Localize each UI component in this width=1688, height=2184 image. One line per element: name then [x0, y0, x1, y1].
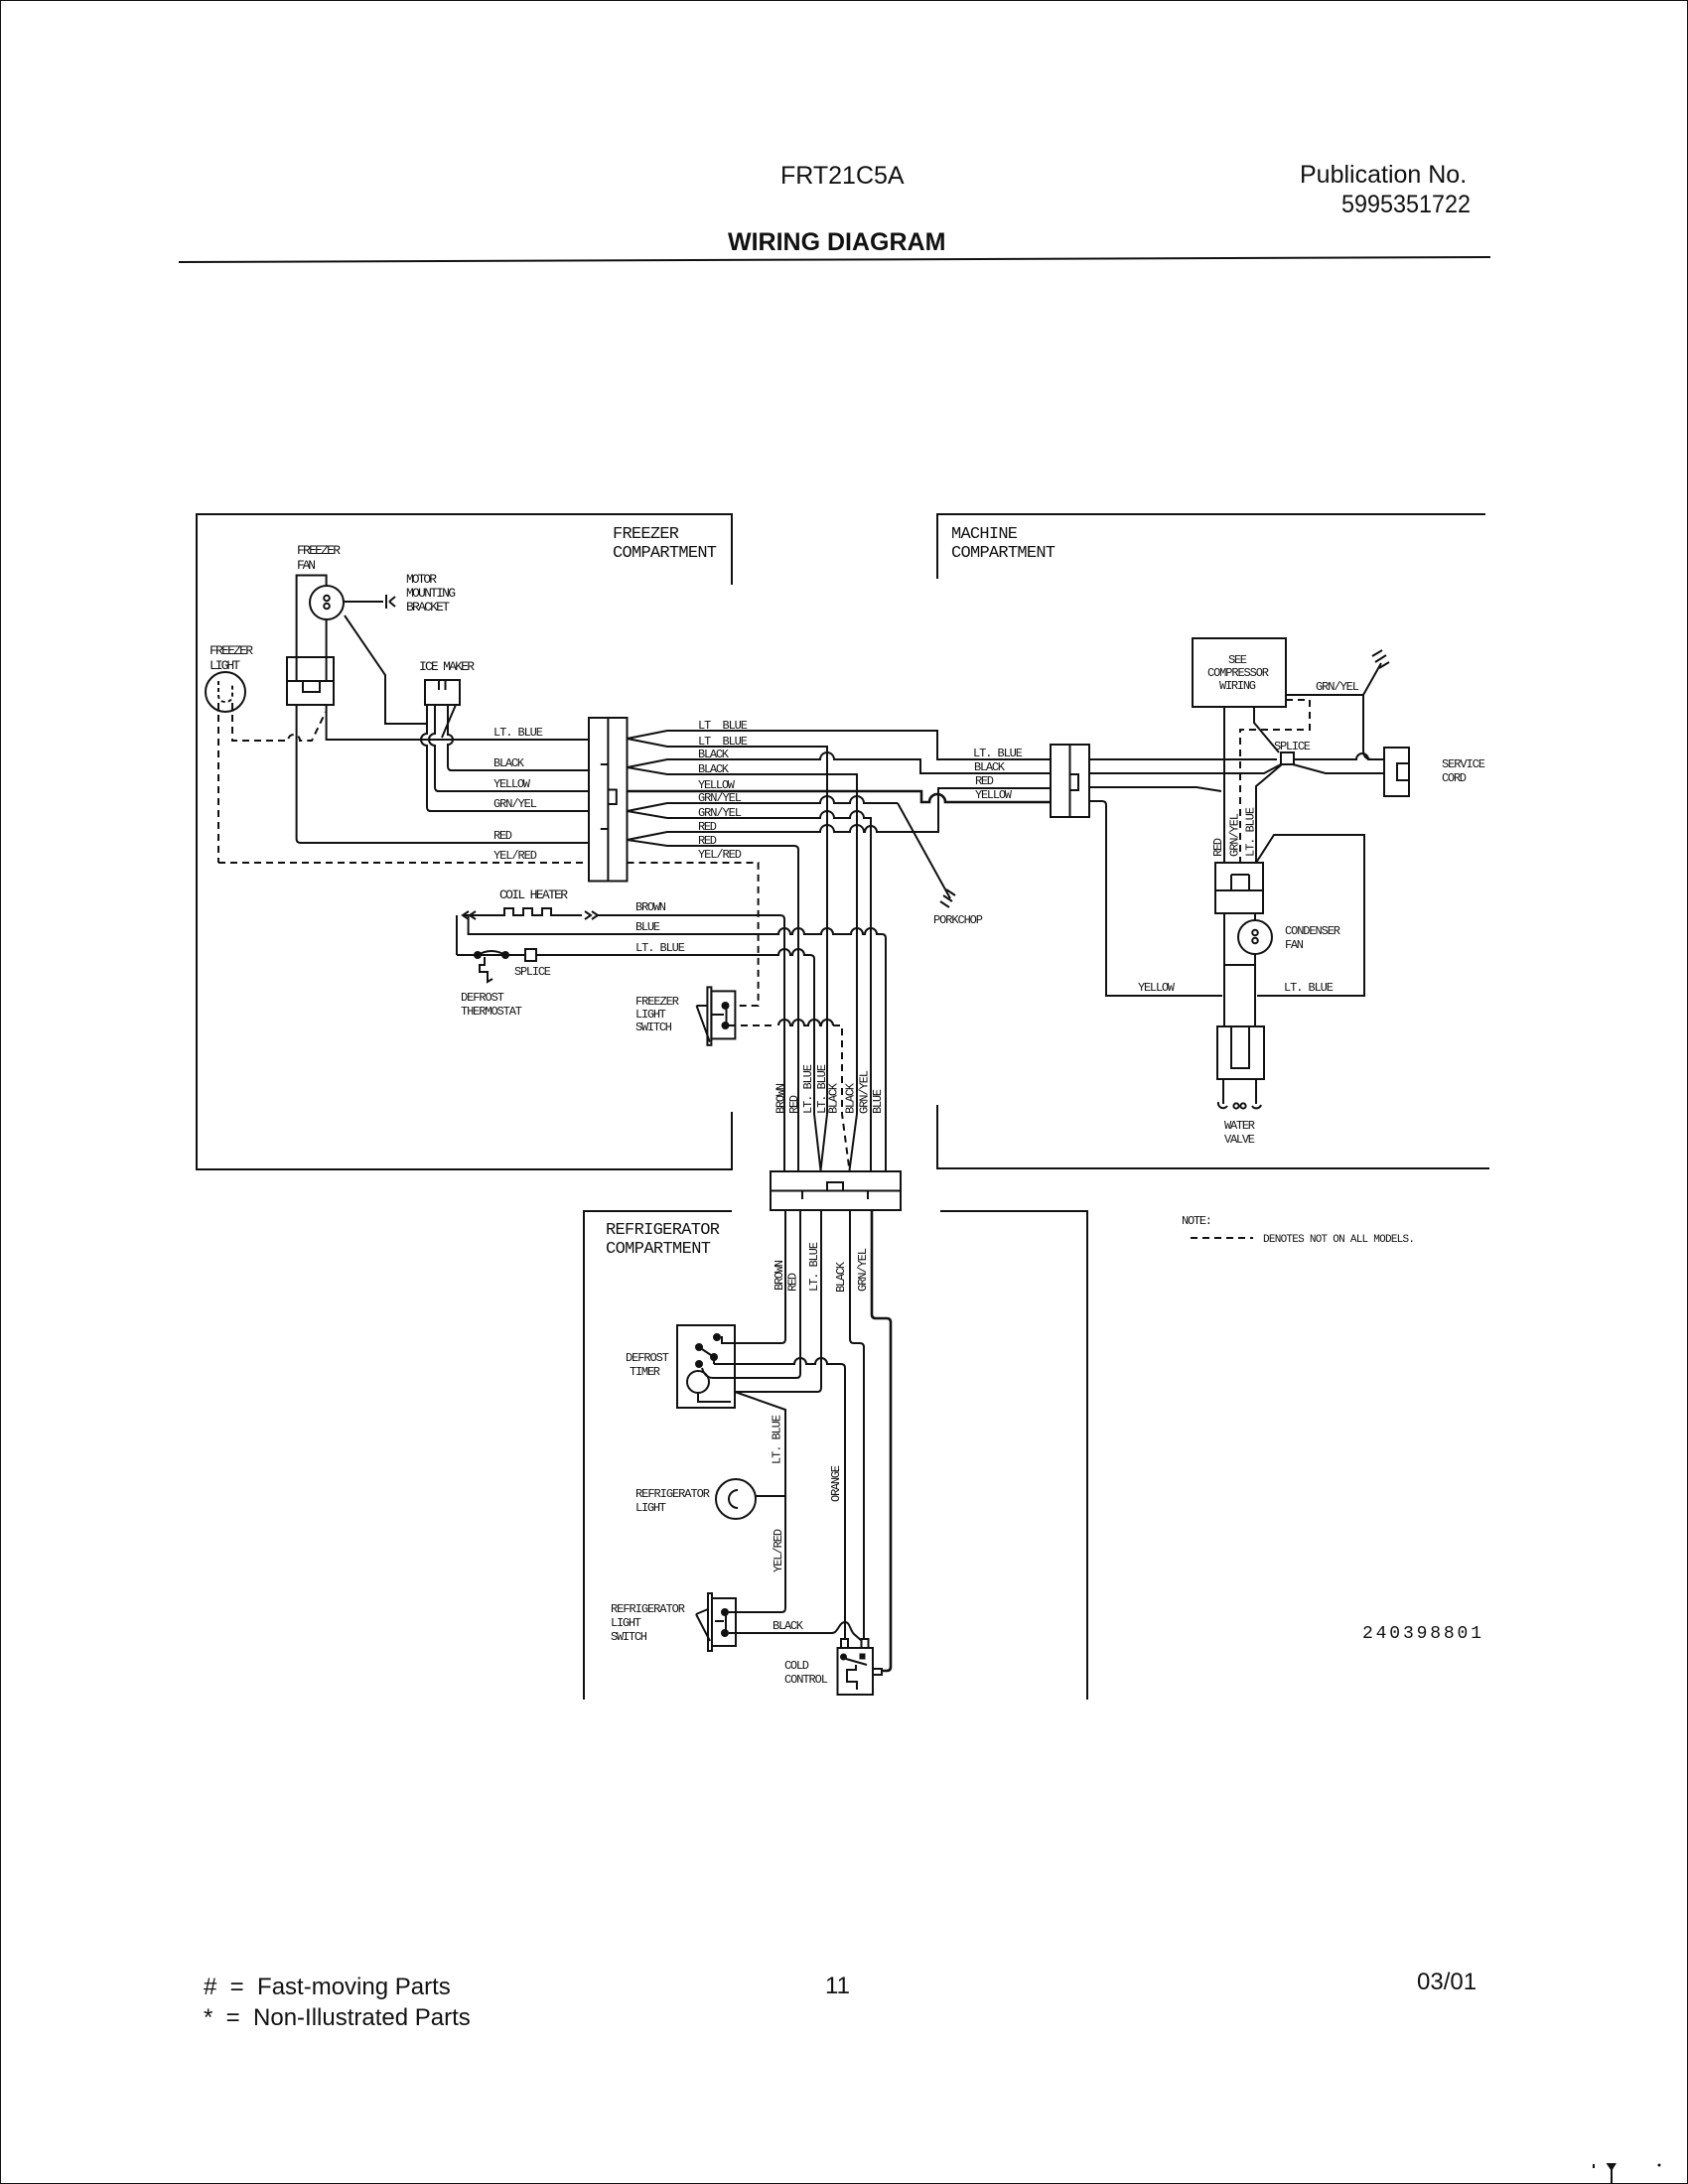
svg-text:RED: RED [698, 820, 717, 834]
svg-text:REFRIGERATOR: REFRIGERATOR [611, 1602, 685, 1616]
svg-text:LT. BLUE: LT. BLUE [635, 941, 685, 955]
svg-text:REFRIGERATOR: REFRIGERATOR [606, 1221, 720, 1240]
svg-text:ICE MAKER: ICE MAKER [419, 659, 475, 674]
svg-text:CONTROL: CONTROL [784, 1673, 828, 1687]
svg-text:# = Fast-moving Parts: # = Fast-moving Parts [204, 1974, 451, 2000]
svg-text:RED: RED [493, 829, 512, 843]
svg-text:FREEZER: FREEZER [613, 525, 679, 544]
svg-text:COIL HEATER: COIL HEATER [499, 887, 568, 902]
svg-text:GRN/YEL: GRN/YEL [493, 797, 537, 811]
svg-text:BLACK: BLACK [698, 762, 730, 776]
svg-text:RED: RED [1211, 838, 1225, 857]
svg-text:FRT21C5A: FRT21C5A [780, 162, 905, 190]
svg-text:LT. BLUE: LT. BLUE [807, 1242, 821, 1292]
svg-text:SEE: SEE [1228, 653, 1247, 667]
svg-text:LT. BLUE: LT. BLUE [1244, 807, 1258, 857]
svg-text:BROWN: BROWN [774, 1083, 788, 1114]
svg-text:Publication No.: Publication No. [1300, 161, 1467, 189]
svg-text:240398801: 240398801 [1362, 1624, 1481, 1644]
svg-text:MOTOR: MOTOR [406, 572, 437, 587]
svg-text:BLACK: BLACK [493, 756, 525, 770]
svg-text:FAN: FAN [1285, 938, 1304, 952]
svg-text:YEL/RED: YEL/RED [772, 1529, 785, 1572]
svg-text:CONDENSER: CONDENSER [1285, 924, 1340, 938]
svg-text:YELLOW: YELLOW [975, 788, 1013, 802]
svg-text:FAN: FAN [297, 558, 316, 573]
svg-text:YELLOW: YELLOW [698, 778, 736, 792]
svg-text:GRN/YEL: GRN/YEL [698, 806, 742, 820]
svg-text:YELLOW: YELLOW [493, 777, 531, 791]
svg-text:BLACK: BLACK [974, 760, 1006, 774]
svg-text:LT. BLUE: LT. BLUE [771, 1415, 784, 1464]
svg-text:GRN/YEL: GRN/YEL [698, 791, 742, 805]
svg-text:THERMOSTAT: THERMOSTAT [461, 1005, 522, 1019]
svg-text:WIRING DIAGRAM: WIRING DIAGRAM [728, 228, 945, 256]
svg-text:BROWN: BROWN [773, 1260, 786, 1291]
svg-text:LIGHT: LIGHT [210, 658, 240, 673]
svg-text:BLACK: BLACK [827, 1082, 841, 1114]
svg-text:GRN/YEL: GRN/YEL [1316, 680, 1359, 694]
svg-text:LT BLUE: LT BLUE [698, 735, 748, 749]
svg-text:BRACKET: BRACKET [406, 600, 450, 614]
svg-text:BLUE: BLUE [871, 1089, 885, 1114]
svg-text:ORANGE: ORANGE [829, 1465, 843, 1502]
svg-text:WIRING: WIRING [1219, 679, 1256, 693]
svg-text:LIGHT: LIGHT [635, 1008, 666, 1022]
svg-text:WATER: WATER [1224, 1119, 1255, 1133]
svg-text:COMPRESSOR: COMPRESSOR [1207, 666, 1269, 680]
svg-text:COMPARTMENT: COMPARTMENT [951, 544, 1055, 563]
svg-text:LIGHT: LIGHT [611, 1616, 641, 1630]
svg-text:TIMER: TIMER [630, 1365, 660, 1379]
svg-text:DEFROST: DEFROST [461, 991, 504, 1005]
svg-text:MOUNTING: MOUNTING [406, 586, 456, 601]
svg-text:BROWN: BROWN [635, 900, 666, 914]
svg-text:CORD: CORD [1442, 771, 1467, 785]
svg-text:VALVE: VALVE [1224, 1133, 1255, 1147]
svg-text:PORKCHOP: PORKCHOP [933, 913, 983, 927]
svg-text:RED: RED [975, 774, 994, 788]
svg-text:GRN/YEL: GRN/YEL [858, 1070, 872, 1114]
svg-text:GRN/YEL: GRN/YEL [856, 1248, 870, 1292]
svg-text:LT. BLUE: LT. BLUE [1284, 981, 1334, 995]
svg-text:03/01: 03/01 [1417, 1969, 1477, 1995]
svg-text:11: 11 [825, 1973, 850, 1999]
svg-text:DENOTES NOT ON ALL MODELS.: DENOTES NOT ON ALL MODELS. [1263, 1234, 1415, 1246]
svg-text:FREEZER: FREEZER [210, 643, 253, 658]
svg-text:SPLICE: SPLICE [514, 965, 551, 979]
svg-text:RED: RED [786, 1273, 800, 1292]
svg-text:COLD: COLD [784, 1659, 809, 1673]
svg-text:SPLICE: SPLICE [1274, 740, 1311, 753]
svg-text:RED: RED [698, 834, 717, 848]
svg-text:YEL/RED: YEL/RED [698, 848, 742, 862]
svg-text:SWITCH: SWITCH [611, 1630, 647, 1644]
svg-text:BLACK: BLACK [698, 748, 730, 761]
svg-text:COMPARTMENT: COMPARTMENT [606, 1240, 711, 1259]
svg-text:LT. BLUE: LT. BLUE [973, 747, 1023, 760]
svg-text:LT. BLUE: LT. BLUE [493, 726, 543, 740]
svg-text:LT. BLUE: LT. BLUE [801, 1064, 815, 1114]
svg-text:SERVICE: SERVICE [1442, 757, 1485, 771]
svg-text:FREEZER: FREEZER [297, 543, 341, 558]
svg-text:NOTE:: NOTE: [1182, 1214, 1212, 1228]
svg-text:* = Non-Illustrated Parts: * = Non-Illustrated Parts [204, 2004, 471, 2031]
svg-text:DEFROST: DEFROST [626, 1351, 669, 1365]
svg-text:LT BLUE: LT BLUE [698, 719, 748, 733]
svg-text:MACHINE: MACHINE [951, 525, 1018, 544]
svg-text:GRN/YEL: GRN/YEL [1228, 813, 1242, 857]
svg-text:BLUE: BLUE [635, 920, 660, 934]
svg-text:COMPARTMENT: COMPARTMENT [613, 544, 717, 563]
svg-text:YELLOW: YELLOW [1138, 981, 1176, 995]
svg-text:RED: RED [787, 1095, 801, 1114]
svg-text:BLACK: BLACK [773, 1619, 804, 1633]
svg-text:BLACK: BLACK [844, 1082, 858, 1114]
svg-text:REFRIGERATOR: REFRIGERATOR [635, 1487, 710, 1501]
svg-text:BLACK: BLACK [834, 1261, 848, 1293]
svg-text:5995351722: 5995351722 [1341, 191, 1471, 218]
svg-text:SWITCH: SWITCH [635, 1021, 672, 1034]
svg-text:YEL/RED: YEL/RED [493, 849, 537, 863]
svg-text:FREEZER: FREEZER [635, 995, 679, 1009]
svg-text:LIGHT: LIGHT [635, 1501, 666, 1515]
